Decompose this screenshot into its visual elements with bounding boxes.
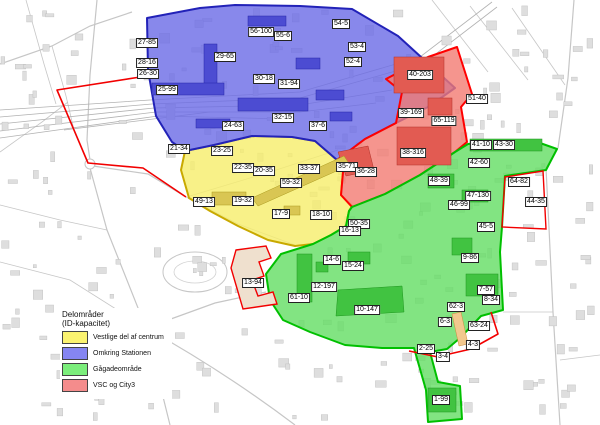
building-footprint [560, 404, 566, 409]
building-footprint [89, 283, 98, 291]
legend-label: Vestlige del af centrum [93, 334, 164, 341]
building-footprint [581, 255, 591, 260]
legend-swatch-station [62, 347, 88, 360]
building-footprint [8, 180, 17, 184]
building-footprint [487, 115, 492, 120]
building-footprint [539, 379, 545, 383]
building-footprint [442, 36, 451, 45]
building-footprint [149, 403, 154, 409]
building-footprint [587, 39, 593, 49]
building-footprint [122, 64, 126, 70]
building-footprint [491, 93, 501, 102]
building-footprint [293, 415, 297, 419]
building-footprint [27, 15, 33, 22]
legend-item-vestlige: Vestlige del af centrum [62, 331, 164, 344]
legend-label: Gågadeområde [93, 366, 142, 373]
building-footprint [198, 263, 207, 272]
building-footprint [2, 122, 8, 130]
building-footprint [93, 413, 97, 421]
building-footprint [44, 125, 49, 130]
building-footprint [576, 311, 585, 320]
building-footprint [576, 218, 585, 223]
building-footprint [67, 75, 77, 84]
legend-label: VSC og City3 [93, 382, 135, 389]
building-footprint [403, 353, 412, 361]
building-footprint [214, 403, 218, 413]
building-footprint [131, 84, 136, 88]
building-footprint [588, 306, 595, 315]
building-footprint [130, 187, 135, 193]
building-footprint [193, 256, 202, 263]
building-footprint [110, 294, 114, 298]
building-footprint [543, 50, 548, 58]
building-footprint [210, 263, 216, 266]
building-footprint [75, 34, 83, 40]
legend-item-gagade: Gågadeområde [62, 363, 164, 376]
building-footprint [557, 344, 564, 354]
building-footprint [480, 120, 484, 129]
building-footprint [1, 57, 5, 65]
building-footprint [501, 121, 504, 127]
building-footprint [337, 377, 342, 383]
building-footprint [513, 49, 519, 56]
building-footprint [522, 6, 528, 16]
building-footprint [587, 202, 594, 211]
building-footprint [99, 399, 104, 405]
building-footprint [549, 111, 557, 118]
legend-item-station: Omkring Stationen [62, 347, 164, 360]
building-footprint [509, 292, 516, 296]
building-footprint [195, 225, 200, 235]
building-footprint [42, 403, 51, 406]
building-footprint [12, 318, 20, 328]
building-footprint [549, 317, 557, 326]
building-footprint [88, 172, 91, 180]
building-footprint [528, 191, 533, 198]
building-footprint [23, 65, 31, 69]
building-footprint [527, 232, 535, 241]
building-footprint [33, 265, 36, 268]
building-footprint [130, 39, 136, 49]
building-footprint [71, 51, 78, 56]
building-footprint [540, 405, 546, 415]
building-footprint [46, 305, 54, 312]
building-footprint [39, 222, 44, 227]
building-footprint [222, 257, 225, 263]
legend-title: Delområder (ID-kapacitet) [62, 310, 164, 328]
legend-title-line1: Delområder [62, 310, 164, 319]
building-footprint [154, 248, 161, 257]
building-footprint [488, 348, 498, 351]
building-footprint [24, 124, 29, 129]
building-footprint [314, 368, 323, 377]
legend-swatch-vestlige [62, 331, 88, 344]
building-footprint [51, 152, 55, 162]
building-footprint [2, 241, 9, 249]
building-footprint [321, 415, 327, 421]
building-footprint [33, 91, 37, 98]
building-footprint [487, 21, 497, 30]
building-footprint [589, 165, 592, 174]
building-footprint [193, 268, 196, 272]
building-footprint [57, 408, 63, 416]
building-footprint [275, 340, 283, 343]
building-footprint [557, 93, 563, 100]
building-footprint [46, 14, 54, 17]
building-footprint [242, 329, 248, 336]
legend-swatch-vsc [62, 379, 88, 392]
building-footprint [3, 324, 10, 329]
legend: Delområder (ID-kapacitet) Vestlige del a… [60, 308, 172, 399]
building-footprint [567, 385, 575, 392]
building-footprint [78, 236, 82, 240]
building-footprint [33, 170, 38, 178]
building-footprint [97, 267, 107, 273]
building-footprint [116, 259, 120, 264]
building-footprint [40, 336, 47, 340]
legend-title-line2: (ID-kapacitet) [62, 319, 164, 328]
building-footprint [465, 403, 473, 413]
building-footprint [43, 45, 49, 52]
building-footprint [166, 151, 175, 158]
building-footprint [464, 59, 471, 64]
building-footprint [571, 77, 577, 81]
building-footprint [132, 133, 142, 140]
building-footprint [43, 177, 47, 184]
building-footprint [393, 10, 403, 17]
building-footprint [524, 381, 534, 390]
building-footprint [175, 333, 184, 339]
building-footprint [119, 120, 126, 124]
building-footprint [56, 116, 62, 124]
building-footprint [510, 316, 519, 325]
building-footprint [553, 75, 564, 79]
building-footprint [23, 71, 27, 80]
building-footprint [525, 67, 528, 72]
building-footprint [517, 123, 521, 132]
building-footprint [16, 309, 20, 314]
building-footprint [517, 30, 526, 34]
building-footprint [33, 290, 42, 299]
legend-item-vsc: VSC og City3 [62, 379, 164, 392]
building-footprint [178, 225, 189, 230]
building-footprint [329, 365, 332, 369]
building-footprint [453, 377, 458, 382]
building-footprint [512, 263, 518, 270]
zone-map: 27-8528-1626-3025-9956-10055-629-6554-55… [0, 0, 600, 425]
building-footprint [11, 271, 20, 276]
building-footprint [286, 364, 290, 369]
building-footprint [564, 102, 572, 106]
building-footprint [573, 46, 582, 51]
building-footprint [520, 52, 529, 56]
building-footprint [202, 368, 210, 376]
building-footprint [381, 362, 387, 366]
building-footprint [58, 222, 62, 228]
building-footprint [484, 88, 487, 96]
building-footprint [375, 381, 386, 388]
building-footprint [48, 190, 52, 194]
legend-label: Omkring Stationen [93, 350, 151, 357]
building-footprint [490, 83, 500, 91]
building-footprint [536, 261, 547, 266]
building-footprint [469, 378, 479, 382]
building-footprint [553, 176, 563, 182]
legend-swatch-gagade [62, 363, 88, 376]
building-footprint [570, 284, 576, 289]
building-footprint [569, 347, 577, 351]
building-footprint [225, 287, 231, 294]
legend-items: Vestlige del af centrumOmkring Stationen… [62, 331, 164, 392]
